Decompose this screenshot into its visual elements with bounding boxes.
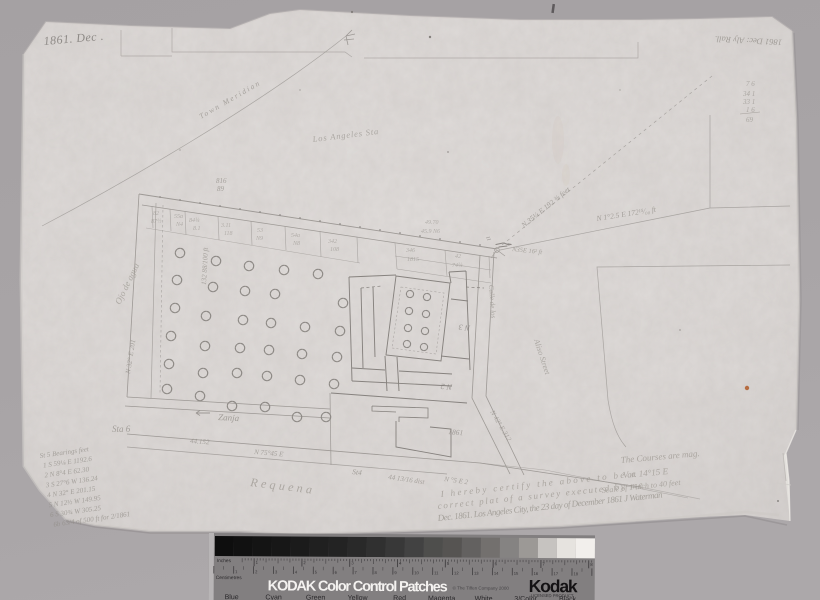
svg-text:1861: 1861 — [448, 427, 464, 437]
svg-text:14: 14 — [494, 571, 499, 576]
svg-text:St4: St4 — [352, 467, 363, 477]
svg-text:84¾: 84¾ — [189, 217, 200, 224]
svg-text:White: White — [475, 596, 493, 600]
svg-text:3/Color: 3/Color — [514, 596, 537, 600]
svg-text:N 2: N 2 — [440, 382, 453, 392]
svg-text:34 1: 34 1 — [742, 90, 755, 98]
svg-text:Sta 6: Sta 6 — [112, 424, 131, 434]
svg-text:55a: 55a — [174, 214, 183, 220]
svg-text:Red: Red — [393, 595, 406, 600]
svg-text:54a: 54a — [291, 232, 300, 239]
svg-text:89: 89 — [217, 185, 225, 193]
svg-text:87½: 87½ — [151, 218, 162, 225]
svg-text:Centimetres: Centimetres — [216, 575, 242, 581]
svg-text:8.1: 8.1 — [193, 226, 201, 232]
svg-text:Magenta: Magenta — [428, 595, 455, 600]
svg-text:Yellow: Yellow — [348, 595, 369, 600]
svg-text:© The Tiffen Company 2000: © The Tiffen Company 2000 — [453, 584, 510, 590]
svg-text:Blue: Blue — [225, 594, 239, 600]
svg-text:82: 82 — [153, 211, 159, 217]
svg-text:Black: Black — [559, 596, 577, 600]
svg-text:Green: Green — [306, 595, 326, 600]
svg-text:13: 13 — [474, 571, 479, 576]
svg-text:108: 108 — [330, 247, 339, 253]
svg-text:118: 118 — [224, 231, 233, 237]
svg-text:33 1: 33 1 — [742, 98, 755, 106]
svg-text:45.9 N6: 45.9 N6 — [421, 228, 440, 235]
svg-text:N9: N9 — [255, 236, 263, 242]
svg-text:11: 11 — [434, 570, 439, 575]
svg-text:74¼: 74¼ — [452, 262, 463, 269]
svg-text:44.152: 44.152 — [190, 437, 210, 446]
svg-text:42: 42 — [455, 253, 461, 260]
svg-text:346: 346 — [405, 247, 415, 254]
svg-text:3.11: 3.11 — [220, 223, 231, 229]
svg-text:816: 816 — [216, 177, 227, 185]
svg-text:Cyan: Cyan — [265, 594, 281, 600]
svg-text:N4: N4 — [175, 221, 183, 228]
svg-text:N8: N8 — [292, 241, 300, 247]
svg-text:15: 15 — [514, 571, 519, 576]
svg-text:69: 69 — [746, 116, 754, 124]
svg-text:1815: 1815 — [407, 257, 419, 263]
svg-text:49.70: 49.70 — [425, 219, 439, 226]
svg-text:Zanja: Zanja — [218, 412, 240, 423]
svg-text:7 6: 7 6 — [746, 80, 755, 88]
svg-text:10: 10 — [414, 570, 419, 575]
svg-text:N 3: N 3 — [458, 323, 471, 333]
svg-text:53: 53 — [257, 228, 263, 234]
svg-text:342: 342 — [327, 238, 337, 245]
svg-text:KODAK Color Control Patches: KODAK Color Control Patches — [268, 578, 448, 595]
svg-text:Inches: Inches — [217, 558, 232, 564]
svg-text:12: 12 — [454, 570, 459, 575]
